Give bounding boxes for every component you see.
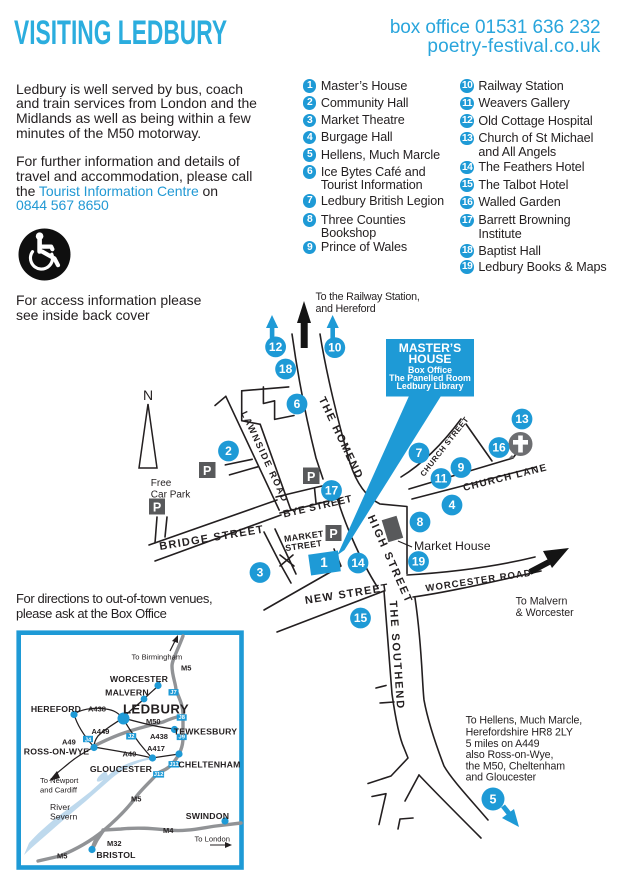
svg-text:Market House: Market House xyxy=(414,539,491,553)
svg-text:M4: M4 xyxy=(163,826,174,835)
svg-text:7: 7 xyxy=(416,446,423,460)
svg-text:CHURCH LANE: CHURCH LANE xyxy=(462,462,549,494)
svg-text:River: River xyxy=(50,802,70,812)
svg-text:SWINDON: SWINDON xyxy=(186,811,229,821)
svg-text:& Worcester: & Worcester xyxy=(516,607,575,619)
svg-text:A417: A417 xyxy=(147,744,165,753)
svg-text:P: P xyxy=(203,464,211,478)
svg-text:12: 12 xyxy=(269,340,283,354)
svg-text:J2: J2 xyxy=(128,734,134,740)
svg-text:M50: M50 xyxy=(146,717,161,726)
svg-text:A40: A40 xyxy=(123,750,137,759)
svg-text:J12: J12 xyxy=(154,772,164,778)
svg-text:BRISTOL: BRISTOL xyxy=(96,850,136,860)
svg-text:To the Railway Station,: To the Railway Station, xyxy=(316,291,420,303)
svg-text:8: 8 xyxy=(417,515,424,529)
svg-text:11: 11 xyxy=(435,472,448,486)
svg-text:and Hereford: and Hereford xyxy=(316,303,376,315)
svg-text:18: 18 xyxy=(279,362,293,376)
svg-text:M5: M5 xyxy=(57,852,67,861)
svg-text:M32: M32 xyxy=(107,839,122,848)
svg-text:BRIDGE STREET: BRIDGE STREET xyxy=(159,524,266,553)
svg-text:Herefordshire HR8 2LY: Herefordshire HR8 2LY xyxy=(466,727,573,739)
svg-text:P: P xyxy=(307,470,315,484)
svg-text:To Hellens, Much Marcle,: To Hellens, Much Marcle, xyxy=(466,715,583,727)
svg-text:17: 17 xyxy=(325,484,339,498)
svg-text:2: 2 xyxy=(225,444,232,458)
svg-text:WORCESTER: WORCESTER xyxy=(110,674,169,684)
svg-text:J7: J7 xyxy=(170,690,176,696)
svg-text:A438: A438 xyxy=(88,705,106,714)
svg-text:P: P xyxy=(329,527,337,541)
svg-text:9: 9 xyxy=(458,461,465,475)
svg-text:LAWNSIDE ROAD: LAWNSIDE ROAD xyxy=(239,410,290,505)
svg-text:HOUSE: HOUSE xyxy=(408,352,451,366)
svg-text:GLOUCESTER: GLOUCESTER xyxy=(90,764,153,774)
svg-text:M5: M5 xyxy=(181,664,191,673)
svg-text:HEREFORD: HEREFORD xyxy=(31,704,81,714)
svg-text:1: 1 xyxy=(320,555,328,570)
svg-text:N: N xyxy=(143,387,153,403)
svg-text:6: 6 xyxy=(294,397,301,411)
svg-text:3: 3 xyxy=(257,566,264,580)
svg-text:5: 5 xyxy=(490,792,497,806)
svg-text:J4: J4 xyxy=(85,737,92,743)
svg-text:ROSS-ON-WYE: ROSS-ON-WYE xyxy=(24,747,89,757)
svg-text:THE HOMEND: THE HOMEND xyxy=(316,395,366,481)
svg-text:To London: To London xyxy=(195,835,230,844)
svg-text:16: 16 xyxy=(492,441,506,455)
svg-text:15: 15 xyxy=(354,611,368,625)
svg-text:and Cardiff: and Cardiff xyxy=(40,786,78,795)
svg-text:Free: Free xyxy=(151,478,172,489)
svg-text:TEWKESBURY: TEWKESBURY xyxy=(174,727,237,737)
svg-text:To Malvern: To Malvern xyxy=(516,595,568,607)
svg-text:4: 4 xyxy=(449,498,456,512)
svg-text:CHELTENHAM: CHELTENHAM xyxy=(178,760,240,770)
svg-text:Ledbury Library: Ledbury Library xyxy=(397,381,464,391)
svg-text:19: 19 xyxy=(412,555,426,569)
svg-text:10: 10 xyxy=(328,341,342,355)
svg-text:14: 14 xyxy=(351,556,365,570)
svg-text:M5: M5 xyxy=(131,795,141,804)
svg-text:P: P xyxy=(153,501,161,515)
svg-text:To Birmingham: To Birmingham xyxy=(132,653,183,662)
svg-text:13: 13 xyxy=(515,412,529,426)
svg-text:MALVERN: MALVERN xyxy=(105,688,149,698)
svg-text:Severn: Severn xyxy=(50,812,77,822)
svg-text:and Gloucester: and Gloucester xyxy=(466,771,537,783)
svg-text:To Newport: To Newport xyxy=(40,776,79,785)
svg-text:NEW STREET: NEW STREET xyxy=(304,582,390,607)
svg-text:A49: A49 xyxy=(62,738,76,747)
svg-text:LEDBURY: LEDBURY xyxy=(123,702,189,717)
svg-text:A438: A438 xyxy=(150,732,168,741)
svg-text:A449: A449 xyxy=(92,727,110,736)
